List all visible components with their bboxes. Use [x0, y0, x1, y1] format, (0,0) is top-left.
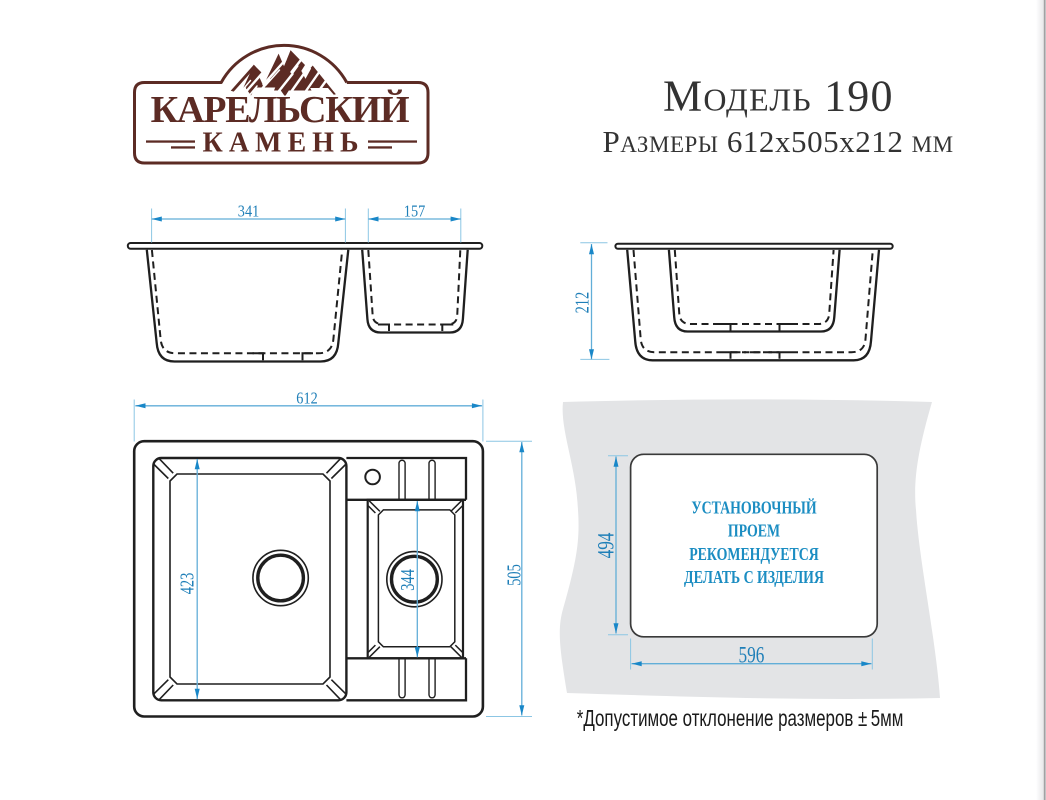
svg-text:494: 494	[594, 533, 619, 559]
svg-text:157: 157	[404, 203, 426, 221]
svg-text:РЕКОМЕНДУЕТСЯ: РЕКОМЕНДУЕТСЯ	[689, 545, 819, 564]
svg-text:212: 212	[570, 292, 593, 314]
svg-text:УСТАНОВОЧНЫЙ: УСТАНОВОЧНЫЙ	[691, 497, 817, 518]
svg-text:505: 505	[502, 564, 525, 586]
svg-text:423: 423	[175, 572, 198, 594]
svg-text:ПРОЕМ: ПРОЕМ	[728, 522, 780, 541]
svg-text:КАМЕНЬ: КАМЕНЬ	[203, 128, 365, 159]
svg-text:КАРЕЛЬСКИЙ: КАРЕЛЬСКИЙ	[151, 89, 409, 131]
svg-text:ДЕЛАТЬ С ИЗДЕЛИЯ: ДЕЛАТЬ С ИЗДЕЛИЯ	[684, 569, 824, 588]
svg-text:341: 341	[238, 203, 259, 221]
svg-text:596: 596	[738, 643, 764, 668]
svg-text:612: 612	[296, 389, 317, 407]
svg-text:*Допустимое отклонение размеро: *Допустимое отклонение размеров ± 5мм	[577, 705, 904, 731]
svg-text:РАЗМЕРЫ 612х505х212 ММ: РАЗМЕРЫ 612х505х212 ММ	[603, 124, 954, 159]
svg-text:344: 344	[396, 569, 419, 591]
svg-text:МОДЕЛЬ 190: МОДЕЛЬ 190	[663, 72, 894, 121]
